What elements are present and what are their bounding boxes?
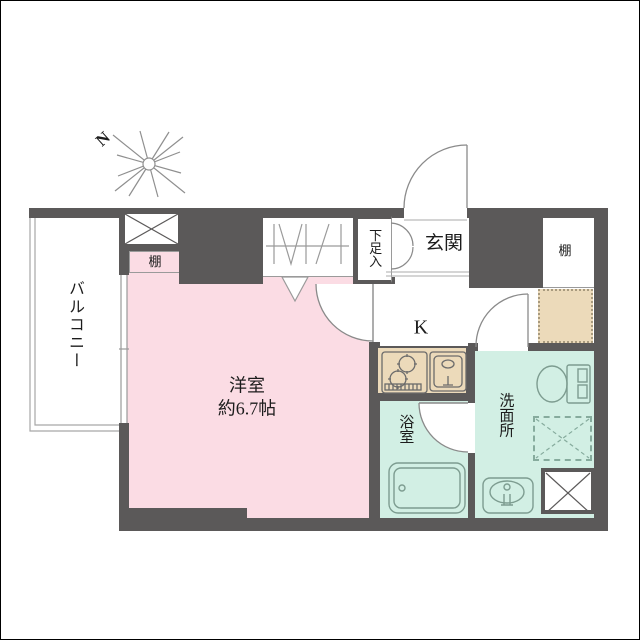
pipe-space-bottom-right [541, 468, 595, 514]
wall-bottom-left-step [119, 508, 247, 531]
kitchen-counter [376, 346, 468, 395]
main-room-size: 約6.7帖 [218, 397, 277, 420]
main-room-label: 洋室 約6.7帖 [218, 375, 277, 420]
kitchen-label: K [414, 316, 428, 341]
entrance-step-line [386, 272, 469, 276]
shelf-left-label: 棚 [148, 254, 161, 270]
pipe-space-top-left [122, 211, 181, 247]
closet [263, 218, 353, 277]
wall-washroom-top [528, 343, 595, 351]
bathroom-label: 浴室 [396, 414, 415, 444]
main-room-name: 洋室 [218, 375, 277, 398]
entrance-label: 玄関 [425, 232, 463, 256]
bathroom-floor [380, 401, 468, 518]
wall-bath-wash-lower [468, 453, 475, 518]
wall-block-left-of-closet [179, 208, 263, 284]
washroom-label: 洗面所 [496, 393, 515, 438]
north-label: N [91, 127, 114, 151]
washroom-door[interactable] [476, 294, 528, 347]
wall-bottom-main [247, 518, 608, 531]
wall-right [594, 208, 608, 531]
washing-machine-space [533, 416, 592, 461]
wall-washroom-top-stub [468, 343, 478, 351]
wall-block-right-of-entrance [469, 208, 543, 288]
compass-icon [113, 131, 185, 197]
balcony-label: バルコニー [64, 280, 84, 370]
shoe-storage-doors[interactable] [391, 223, 413, 269]
shoe-storage-label: 下足入 [366, 229, 382, 268]
wall-left-lower [119, 423, 129, 531]
floorplan-canvas: N バルコニー 棚 洋室 約6.7帖 下足入 玄関 K 棚 浴室 洗面所 [0, 0, 640, 640]
refrigerator-space [538, 289, 593, 343]
wall-bath-wash-upper [468, 351, 475, 403]
shelf-right-label: 棚 [558, 243, 571, 259]
entrance-door[interactable] [404, 145, 467, 220]
